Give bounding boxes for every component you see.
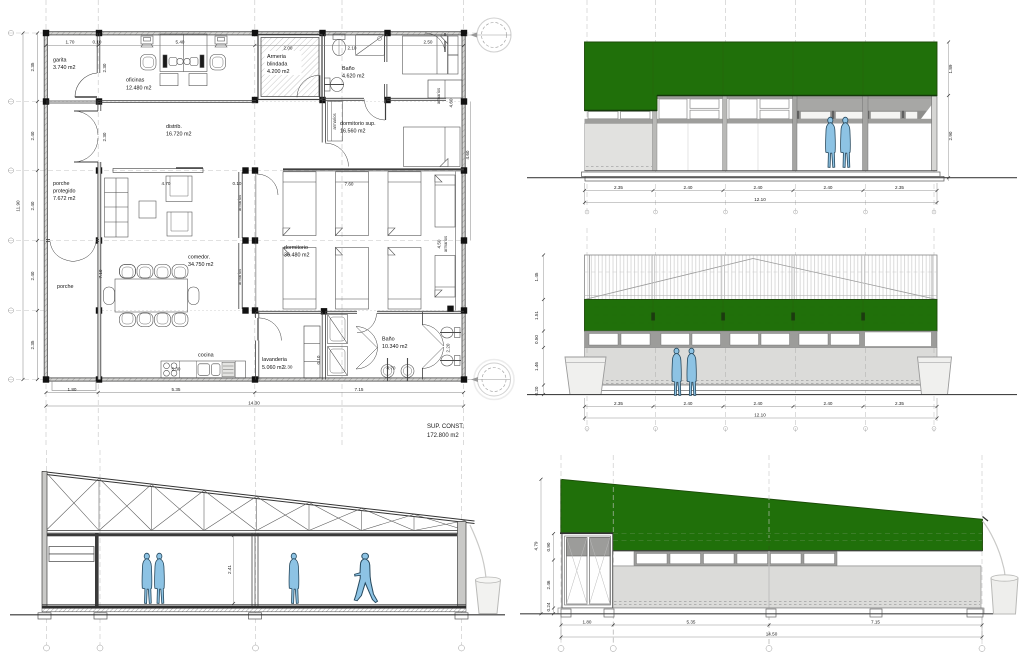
svg-text:5.060 m2: 5.060 m2 <box>262 365 284 371</box>
svg-text:2.40: 2.40 <box>30 271 35 280</box>
svg-text:SUP. CONST.: SUP. CONST. <box>427 424 464 430</box>
svg-text:0.10: 0.10 <box>316 355 321 364</box>
svg-text:dormitorio: dormitorio <box>284 245 308 251</box>
svg-text:4.70: 4.70 <box>162 181 171 186</box>
svg-text:36.480 m2: 36.480 m2 <box>284 253 309 259</box>
svg-text:172.800 m2: 172.800 m2 <box>427 433 459 439</box>
svg-text:1.70: 1.70 <box>66 39 75 44</box>
svg-text:comedor.: comedor. <box>188 255 210 261</box>
svg-text:2.30: 2.30 <box>102 132 107 141</box>
svg-text:2.40: 2.40 <box>30 201 35 210</box>
svg-text:armarios: armarios <box>443 236 448 252</box>
svg-text:7.672 m2: 7.672 m2 <box>53 196 75 202</box>
svg-text:Baño: Baño <box>382 337 395 343</box>
svg-text:2.35: 2.35 <box>895 401 904 406</box>
svg-text:2.35: 2.35 <box>30 62 35 71</box>
svg-text:5.40: 5.40 <box>176 39 185 44</box>
svg-text:cocina: cocina <box>198 353 214 359</box>
svg-text:34.750 m2: 34.750 m2 <box>188 262 213 268</box>
svg-text:armarios: armarios <box>237 269 242 285</box>
svg-text:2.90: 2.90 <box>948 131 953 140</box>
svg-text:armarios: armarios <box>237 195 242 211</box>
svg-text:2.40: 2.40 <box>684 401 693 406</box>
svg-text:5.30: 5.30 <box>172 367 181 372</box>
svg-text:distrib.: distrib. <box>166 124 182 130</box>
svg-text:porche: porche <box>53 181 69 187</box>
svg-text:1.46: 1.46 <box>534 362 539 371</box>
svg-text:0.24: 0.24 <box>546 602 551 611</box>
svg-text:0.20: 0.20 <box>534 386 539 395</box>
svg-text:Baño: Baño <box>342 66 355 72</box>
svg-text:2.35: 2.35 <box>895 185 904 190</box>
svg-text:1.80: 1.80 <box>583 620 592 625</box>
svg-text:garita: garita <box>53 58 67 64</box>
svg-text:armarios: armarios <box>436 88 441 104</box>
svg-text:12.480 m2: 12.480 m2 <box>126 86 151 92</box>
svg-text:Armeria: Armeria <box>267 54 286 60</box>
svg-text:2.40: 2.40 <box>754 185 763 190</box>
svg-text:11.90: 11.90 <box>16 200 21 212</box>
svg-text:protegido: protegido <box>53 189 75 195</box>
svg-text:blindada: blindada <box>267 62 287 68</box>
svg-text:2.10: 2.10 <box>348 46 357 51</box>
svg-text:2.35: 2.35 <box>614 401 623 406</box>
svg-text:2.30: 2.30 <box>284 365 293 370</box>
svg-text:10.340 m2: 10.340 m2 <box>382 344 407 350</box>
svg-text:2.40: 2.40 <box>684 185 693 190</box>
svg-text:7.60: 7.60 <box>345 182 354 187</box>
svg-text:7.15: 7.15 <box>871 620 880 625</box>
svg-text:16.560 m2: 16.560 m2 <box>340 129 365 135</box>
svg-text:0.90: 0.90 <box>546 542 551 551</box>
svg-text:2.20: 2.20 <box>446 343 451 352</box>
svg-text:1.89: 1.89 <box>948 64 953 73</box>
svg-text:12.10: 12.10 <box>754 413 766 418</box>
svg-text:2.40: 2.40 <box>754 401 763 406</box>
svg-text:1.45: 1.45 <box>534 272 539 281</box>
svg-text:2.46: 2.46 <box>546 580 551 589</box>
svg-text:2.35: 2.35 <box>30 340 35 349</box>
svg-text:4.60: 4.60 <box>465 150 470 159</box>
svg-text:2.00: 2.00 <box>284 46 293 51</box>
svg-text:2.30: 2.30 <box>102 63 107 72</box>
svg-text:16.720 m2: 16.720 m2 <box>166 132 191 138</box>
svg-text:2.41: 2.41 <box>227 565 232 574</box>
svg-text:5.35: 5.35 <box>172 387 181 392</box>
svg-text:4.60: 4.60 <box>449 98 454 107</box>
svg-text:14.50: 14.50 <box>766 632 778 637</box>
svg-text:0.10: 0.10 <box>233 181 242 186</box>
svg-text:2.40: 2.40 <box>824 185 833 190</box>
svg-text:lavanderia: lavanderia <box>262 357 287 363</box>
svg-text:oficinas: oficinas <box>126 78 145 84</box>
svg-text:7.10: 7.10 <box>98 269 103 278</box>
svg-text:armarios: armarios <box>332 113 337 129</box>
svg-text:4.200 m2: 4.200 m2 <box>267 69 289 75</box>
svg-text:5.35: 5.35 <box>687 620 696 625</box>
svg-text:porche: porche <box>57 284 73 290</box>
svg-text:14.30: 14.30 <box>248 401 260 406</box>
svg-text:0.10: 0.10 <box>93 39 102 44</box>
svg-text:dormitorio sup.: dormitorio sup. <box>340 121 376 127</box>
svg-text:1.51: 1.51 <box>534 311 539 320</box>
svg-text:4.79: 4.79 <box>534 541 539 550</box>
svg-text:2.40: 2.40 <box>30 131 35 140</box>
svg-text:7.15: 7.15 <box>355 387 364 392</box>
svg-text:12.10: 12.10 <box>754 197 766 202</box>
svg-text:2.50: 2.50 <box>424 39 433 44</box>
svg-text:1.80: 1.80 <box>68 387 77 392</box>
svg-text:2.40: 2.40 <box>824 401 833 406</box>
svg-text:4.620 m2: 4.620 m2 <box>342 74 364 80</box>
svg-text:4.50: 4.50 <box>437 239 442 248</box>
svg-text:4.70: 4.70 <box>387 366 396 371</box>
svg-text:2.35: 2.35 <box>614 185 623 190</box>
svg-text:0.50: 0.50 <box>534 335 539 344</box>
svg-text:3.740 m2: 3.740 m2 <box>53 65 75 71</box>
